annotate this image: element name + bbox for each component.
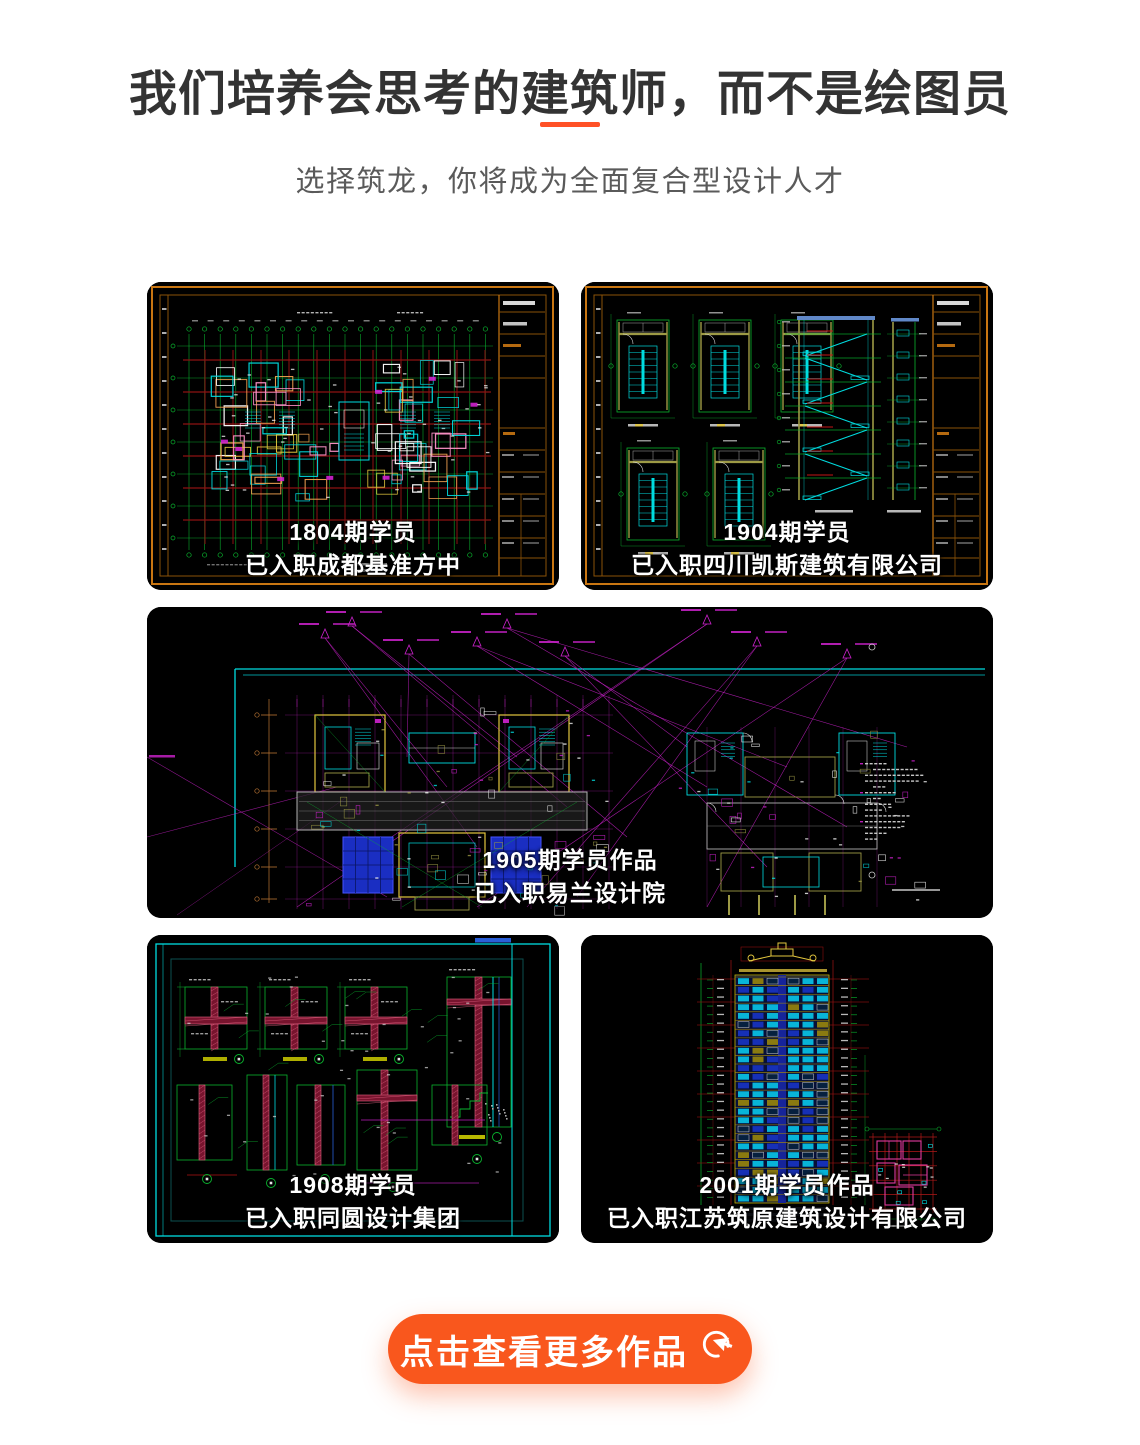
section-subtitle: 选择筑龙，你将成为全面复合型设计人才 bbox=[0, 158, 1140, 200]
work-employment-label: 已入职易兰设计院 bbox=[147, 877, 993, 910]
work-caption-1904: 1904期学员 已入职四川凯斯建筑有限公司 bbox=[581, 516, 993, 582]
cta-label: 点击查看更多作品 bbox=[400, 1325, 688, 1374]
work-batch-label: 2001期学员作品 bbox=[581, 1169, 993, 1202]
work-batch-label: 1904期学员 bbox=[581, 516, 993, 549]
work-batch-label: 1804期学员 bbox=[147, 516, 559, 549]
work-caption-1905: 1905期学员作品 已入职易兰设计院 bbox=[147, 844, 993, 910]
work-caption-2001: 2001期学员作品 已入职江苏筑原建筑设计有限公司 bbox=[581, 1169, 993, 1235]
title-divider bbox=[540, 122, 600, 127]
work-card-1905: 1905期学员作品 已入职易兰设计院 bbox=[147, 607, 993, 918]
work-card-1908: 1908期学员 已入职同圆设计集团 bbox=[147, 935, 559, 1243]
view-more-works-button[interactable]: 点击查看更多作品 bbox=[388, 1314, 752, 1384]
work-card-1804: 1804期学员 已入职成都基准方中 bbox=[147, 282, 559, 590]
work-card-2001: 2001期学员作品 已入职江苏筑原建筑设计有限公司 bbox=[581, 935, 993, 1243]
work-card-1904: 1904期学员 已入职四川凯斯建筑有限公司 bbox=[581, 282, 993, 590]
work-employment-label: 已入职江苏筑原建筑设计有限公司 bbox=[581, 1202, 993, 1235]
section-title: 我们培养会思考的建筑师，而不是绘图员 bbox=[0, 54, 1140, 124]
click-cursor-icon bbox=[700, 1329, 740, 1369]
work-batch-label: 1908期学员 bbox=[147, 1169, 559, 1202]
work-employment-label: 已入职同圆设计集团 bbox=[147, 1202, 559, 1235]
work-employment-label: 已入职四川凯斯建筑有限公司 bbox=[581, 549, 993, 582]
work-batch-label: 1905期学员作品 bbox=[147, 844, 993, 877]
training-results-section: 我们培养会思考的建筑师，而不是绘图员 选择筑龙，你将成为全面复合型设计人才 18… bbox=[0, 0, 1140, 1445]
work-employment-label: 已入职成都基准方中 bbox=[147, 549, 559, 582]
work-caption-1908: 1908期学员 已入职同圆设计集团 bbox=[147, 1169, 559, 1235]
work-caption-1804: 1804期学员 已入职成都基准方中 bbox=[147, 516, 559, 582]
